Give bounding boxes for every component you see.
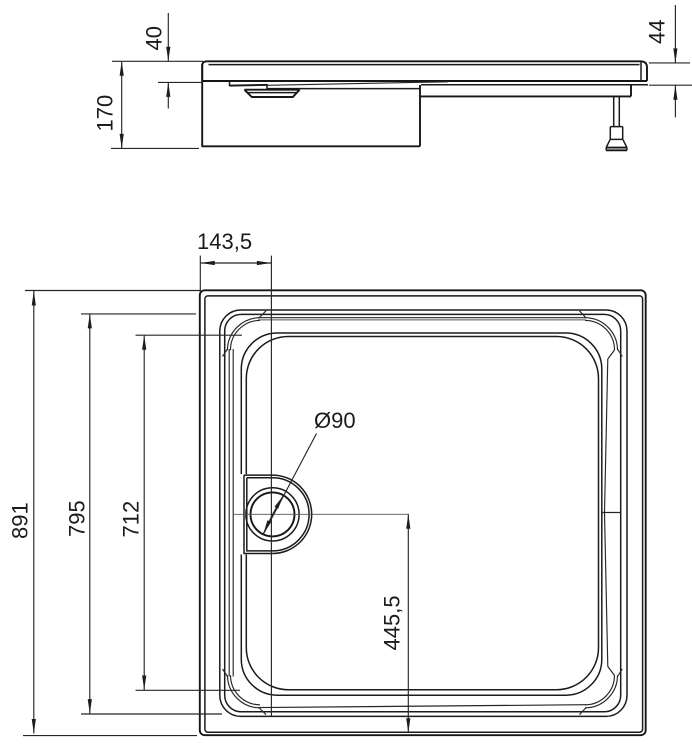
svg-text:891: 891 [8,502,33,539]
svg-text:Ø90: Ø90 [314,408,356,433]
svg-text:170: 170 [93,95,118,132]
svg-text:40: 40 [142,26,167,50]
svg-text:143,5: 143,5 [197,229,252,254]
svg-text:44: 44 [645,20,670,44]
svg-text:712: 712 [119,501,144,538]
svg-text:795: 795 [65,500,90,537]
svg-text:445,5: 445,5 [380,595,405,650]
